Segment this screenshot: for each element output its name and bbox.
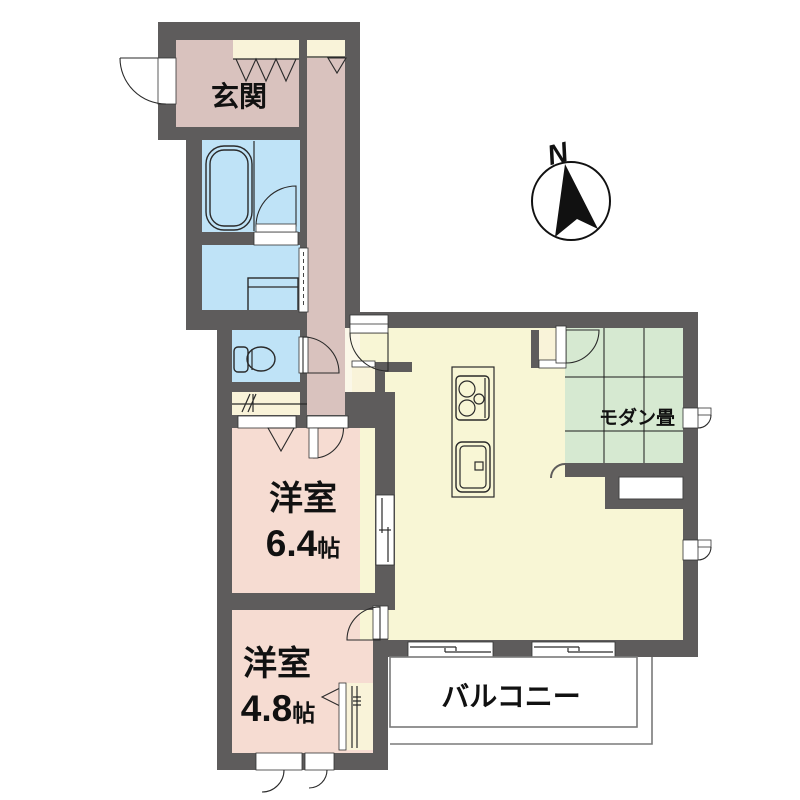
wall-segment [217, 327, 232, 770]
room-size-unit: 帖 [292, 700, 315, 726]
wall-segment [345, 22, 360, 328]
entrance-door-opening [158, 58, 176, 104]
bathroom-door-opening [254, 232, 298, 245]
closet-opening [238, 416, 296, 428]
wall-segment [158, 127, 307, 140]
wall-segment [186, 310, 307, 330]
compass-north-icon: N [532, 136, 610, 240]
wall-segment [217, 593, 395, 610]
western-room-48-name: 洋室 [243, 644, 311, 683]
balcony-sliding-door [532, 642, 615, 657]
balcony-label: バルコニー [441, 681, 580, 712]
wall-segment [683, 312, 698, 657]
wall-segment [217, 753, 388, 770]
room-size-unit: 帖 [317, 535, 340, 561]
room-size-value: 6.4 [266, 523, 318, 564]
wall-segment [158, 22, 360, 40]
corridor-closet [307, 40, 345, 58]
wall-segment [186, 140, 202, 327]
western-room-48-closet [345, 683, 373, 750]
hall-niche [352, 366, 375, 392]
western-room-48-window [256, 753, 302, 792]
western-room-64-name: 洋室 [269, 479, 337, 518]
entrance-label: 玄関 [211, 80, 267, 112]
ldk-side-window [683, 408, 711, 428]
wall-segment [345, 312, 698, 328]
western-room-48-window [305, 753, 334, 788]
compass-north-label: N [544, 136, 572, 171]
wall-segment [531, 330, 539, 368]
tatami-floor [565, 328, 683, 463]
tatami-alcove [619, 477, 683, 499]
shoe-closet [233, 40, 299, 59]
wall-segment [299, 40, 307, 127]
floor-plan-drawing: N 玄関 モダン畳 洋室 6.4帖 洋室 4.8帖 バルコニー [0, 0, 800, 800]
tatami-side-niche [539, 330, 556, 360]
corridor-floor [307, 40, 345, 420]
wall-segment [565, 463, 683, 477]
western-room-64-door-opening [307, 416, 348, 428]
balcony-sliding-door [408, 642, 493, 657]
wall-segment [217, 382, 307, 392]
room-size-value: 4.8 [241, 688, 292, 729]
floor-plan: N 玄関 モダン畳 洋室 6.4帖 洋室 4.8帖 バルコニー [0, 0, 800, 800]
toilet-floor [232, 330, 307, 382]
tatami-label: モダン畳 [599, 406, 675, 429]
closet-door-panel [339, 683, 346, 750]
ldk-side-window [683, 540, 711, 560]
